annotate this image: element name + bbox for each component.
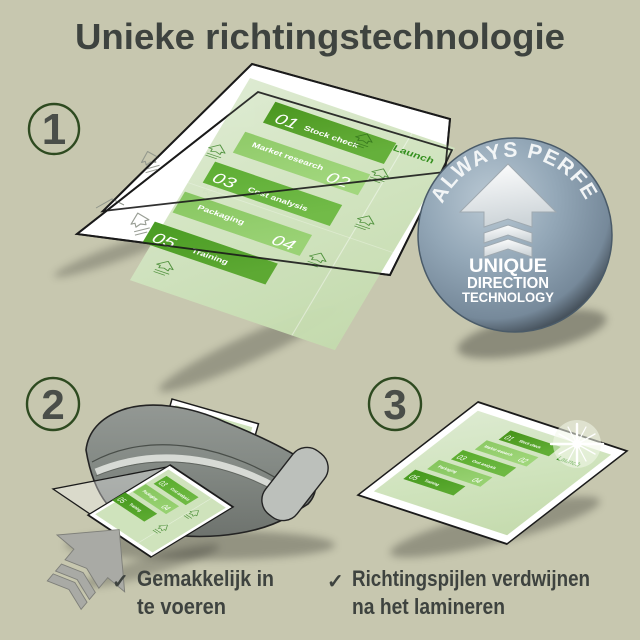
check-icon: ✓ xyxy=(327,571,344,593)
captions: ✓ Gemakkelijk in te voeren ✓ Richtingspi… xyxy=(112,566,590,619)
step1-number: 1 xyxy=(42,105,66,154)
infographic-unique-direction-technology: Unieke richtingstechnologie 1 Launch 01 … xyxy=(0,0,640,640)
caption-arrows-disappear-line2: na het lamineren xyxy=(352,594,505,619)
caption-easy-feed-line1: Gemakkelijk in xyxy=(137,566,274,591)
illustration-canvas: Unieke richtingstechnologie 1 Launch 01 … xyxy=(0,0,640,640)
caption-arrows-disappear-line1: Richtingspijlen verdwijnen xyxy=(352,566,590,591)
step2-number: 2 xyxy=(41,381,64,428)
caption-easy-feed-line2: te voeren xyxy=(137,594,226,619)
step1-scene: 1 Launch 01 Stock check Market research … xyxy=(29,64,455,350)
badge-line3: TECHNOLOGY xyxy=(462,290,554,305)
badge-line1: UNIQUE xyxy=(469,256,547,277)
step3-number: 3 xyxy=(383,381,406,428)
page-title: Unieke richtingstechnologie xyxy=(75,16,565,57)
check-icon: ✓ xyxy=(112,571,129,593)
step3-scene: 3 Launch 01 Stock check Market research … xyxy=(358,378,627,544)
